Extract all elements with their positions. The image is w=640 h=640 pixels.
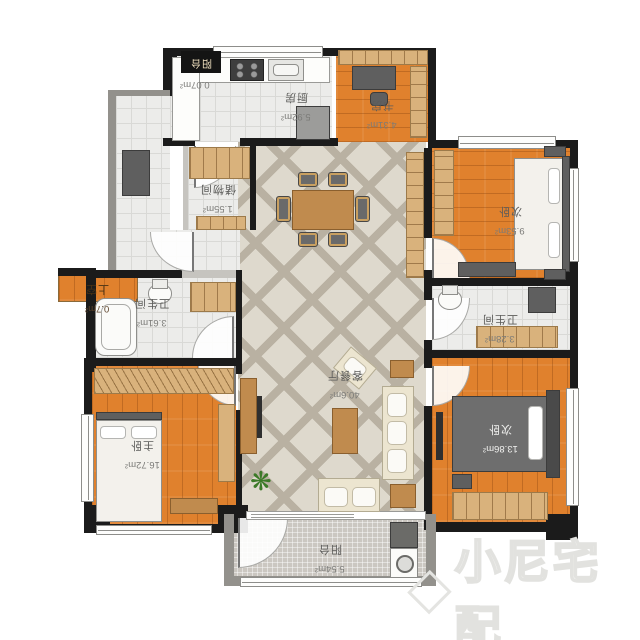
bathtub-icon: [95, 298, 137, 356]
wall: [183, 146, 188, 230]
dining-chair: [328, 232, 348, 247]
sofa-cushion: [387, 393, 407, 417]
nightstand-icon: [452, 474, 472, 489]
dining-chair: [276, 196, 291, 222]
side-table: [390, 484, 416, 508]
window: [458, 136, 556, 149]
sofa-cushion: [352, 487, 376, 507]
master-headboard: [96, 412, 162, 420]
pillow: [548, 222, 560, 258]
wall: [250, 138, 256, 230]
dining-chair: [328, 172, 348, 187]
sofa-two-seat: [318, 478, 380, 512]
wall: [424, 148, 432, 238]
master-dresser: [218, 404, 235, 482]
armchair-cushion: [341, 355, 368, 381]
floor-plan: ❋ 阳台 0.07m² 厨房5.92m² 书房4.31m² 储物间1.55m² …: [0, 0, 640, 640]
living-side-cabinet: [406, 152, 424, 278]
window: [96, 525, 212, 535]
kitchen-sink-icon: [268, 59, 304, 81]
bedroom-bottom-wardrobe: [452, 492, 548, 520]
sofa-three-seat: [382, 386, 414, 480]
wall: [84, 364, 92, 416]
wall: [108, 90, 170, 96]
wall: [236, 270, 242, 366]
pillow: [131, 426, 157, 439]
balcony-top-badge: 阳台: [181, 51, 221, 73]
sofa-cushion: [324, 487, 348, 507]
nightstand-icon: [544, 269, 566, 280]
study-desk-icon: [352, 66, 396, 90]
tv-icon: [257, 396, 262, 438]
window: [240, 577, 422, 587]
master-bench: [170, 498, 218, 514]
nightstand-icon: [544, 146, 566, 157]
wall: [424, 340, 432, 368]
wall: [424, 270, 432, 300]
plant-icon: ❋: [250, 468, 272, 494]
wall: [108, 90, 116, 276]
pillow: [100, 426, 126, 439]
window: [566, 388, 579, 506]
stove-icon: [230, 59, 264, 81]
wall: [92, 358, 240, 366]
bath-right-sink-icon: [528, 287, 556, 313]
bath-right-vanity: [476, 326, 558, 348]
bedroom-top-headboard: [562, 156, 570, 272]
pillow: [528, 406, 543, 460]
bath-left-vanity: [190, 282, 236, 312]
study-shelf: [410, 66, 427, 138]
toilet-icon: [438, 290, 462, 310]
study-cabinet: [338, 50, 428, 65]
wall: [428, 48, 436, 148]
bedroom-top-wardrobe: [434, 150, 454, 236]
dining-table: [292, 190, 354, 230]
bedroom-bottom-headboard: [546, 390, 560, 478]
balcony-sliding-door: [246, 511, 426, 520]
coffee-table: [332, 408, 358, 454]
pillow: [548, 168, 560, 204]
dining-chair: [298, 172, 318, 187]
bedroom-top-dresser: [458, 262, 516, 277]
study-chair-icon: [370, 92, 388, 106]
wall: [236, 364, 242, 374]
dining-chair: [298, 232, 318, 247]
wall: [432, 350, 572, 358]
watermark-text: 小尼宅配: [455, 526, 640, 640]
side-table: [390, 360, 414, 378]
storage-cabinet: [189, 147, 250, 179]
tv-console: [240, 378, 257, 454]
balcony-sink-icon: [390, 522, 418, 548]
sofa-cushion: [387, 449, 407, 473]
dining-chair: [355, 196, 370, 222]
watermark: 小尼宅配: [414, 526, 640, 640]
window: [81, 414, 94, 502]
fridge-icon: [296, 106, 330, 140]
utility-appliance-icon: [122, 150, 150, 196]
tv-icon: [436, 412, 443, 460]
master-wardrobe: [94, 368, 234, 394]
wall: [92, 270, 182, 278]
hall-cabinet: [196, 216, 246, 230]
wall: [224, 514, 234, 584]
wall: [546, 514, 578, 540]
sofa-cushion: [387, 421, 407, 445]
washing-machine-icon: [390, 548, 418, 578]
toilet-icon: [148, 284, 172, 304]
wall: [426, 514, 436, 584]
wall: [58, 268, 96, 276]
